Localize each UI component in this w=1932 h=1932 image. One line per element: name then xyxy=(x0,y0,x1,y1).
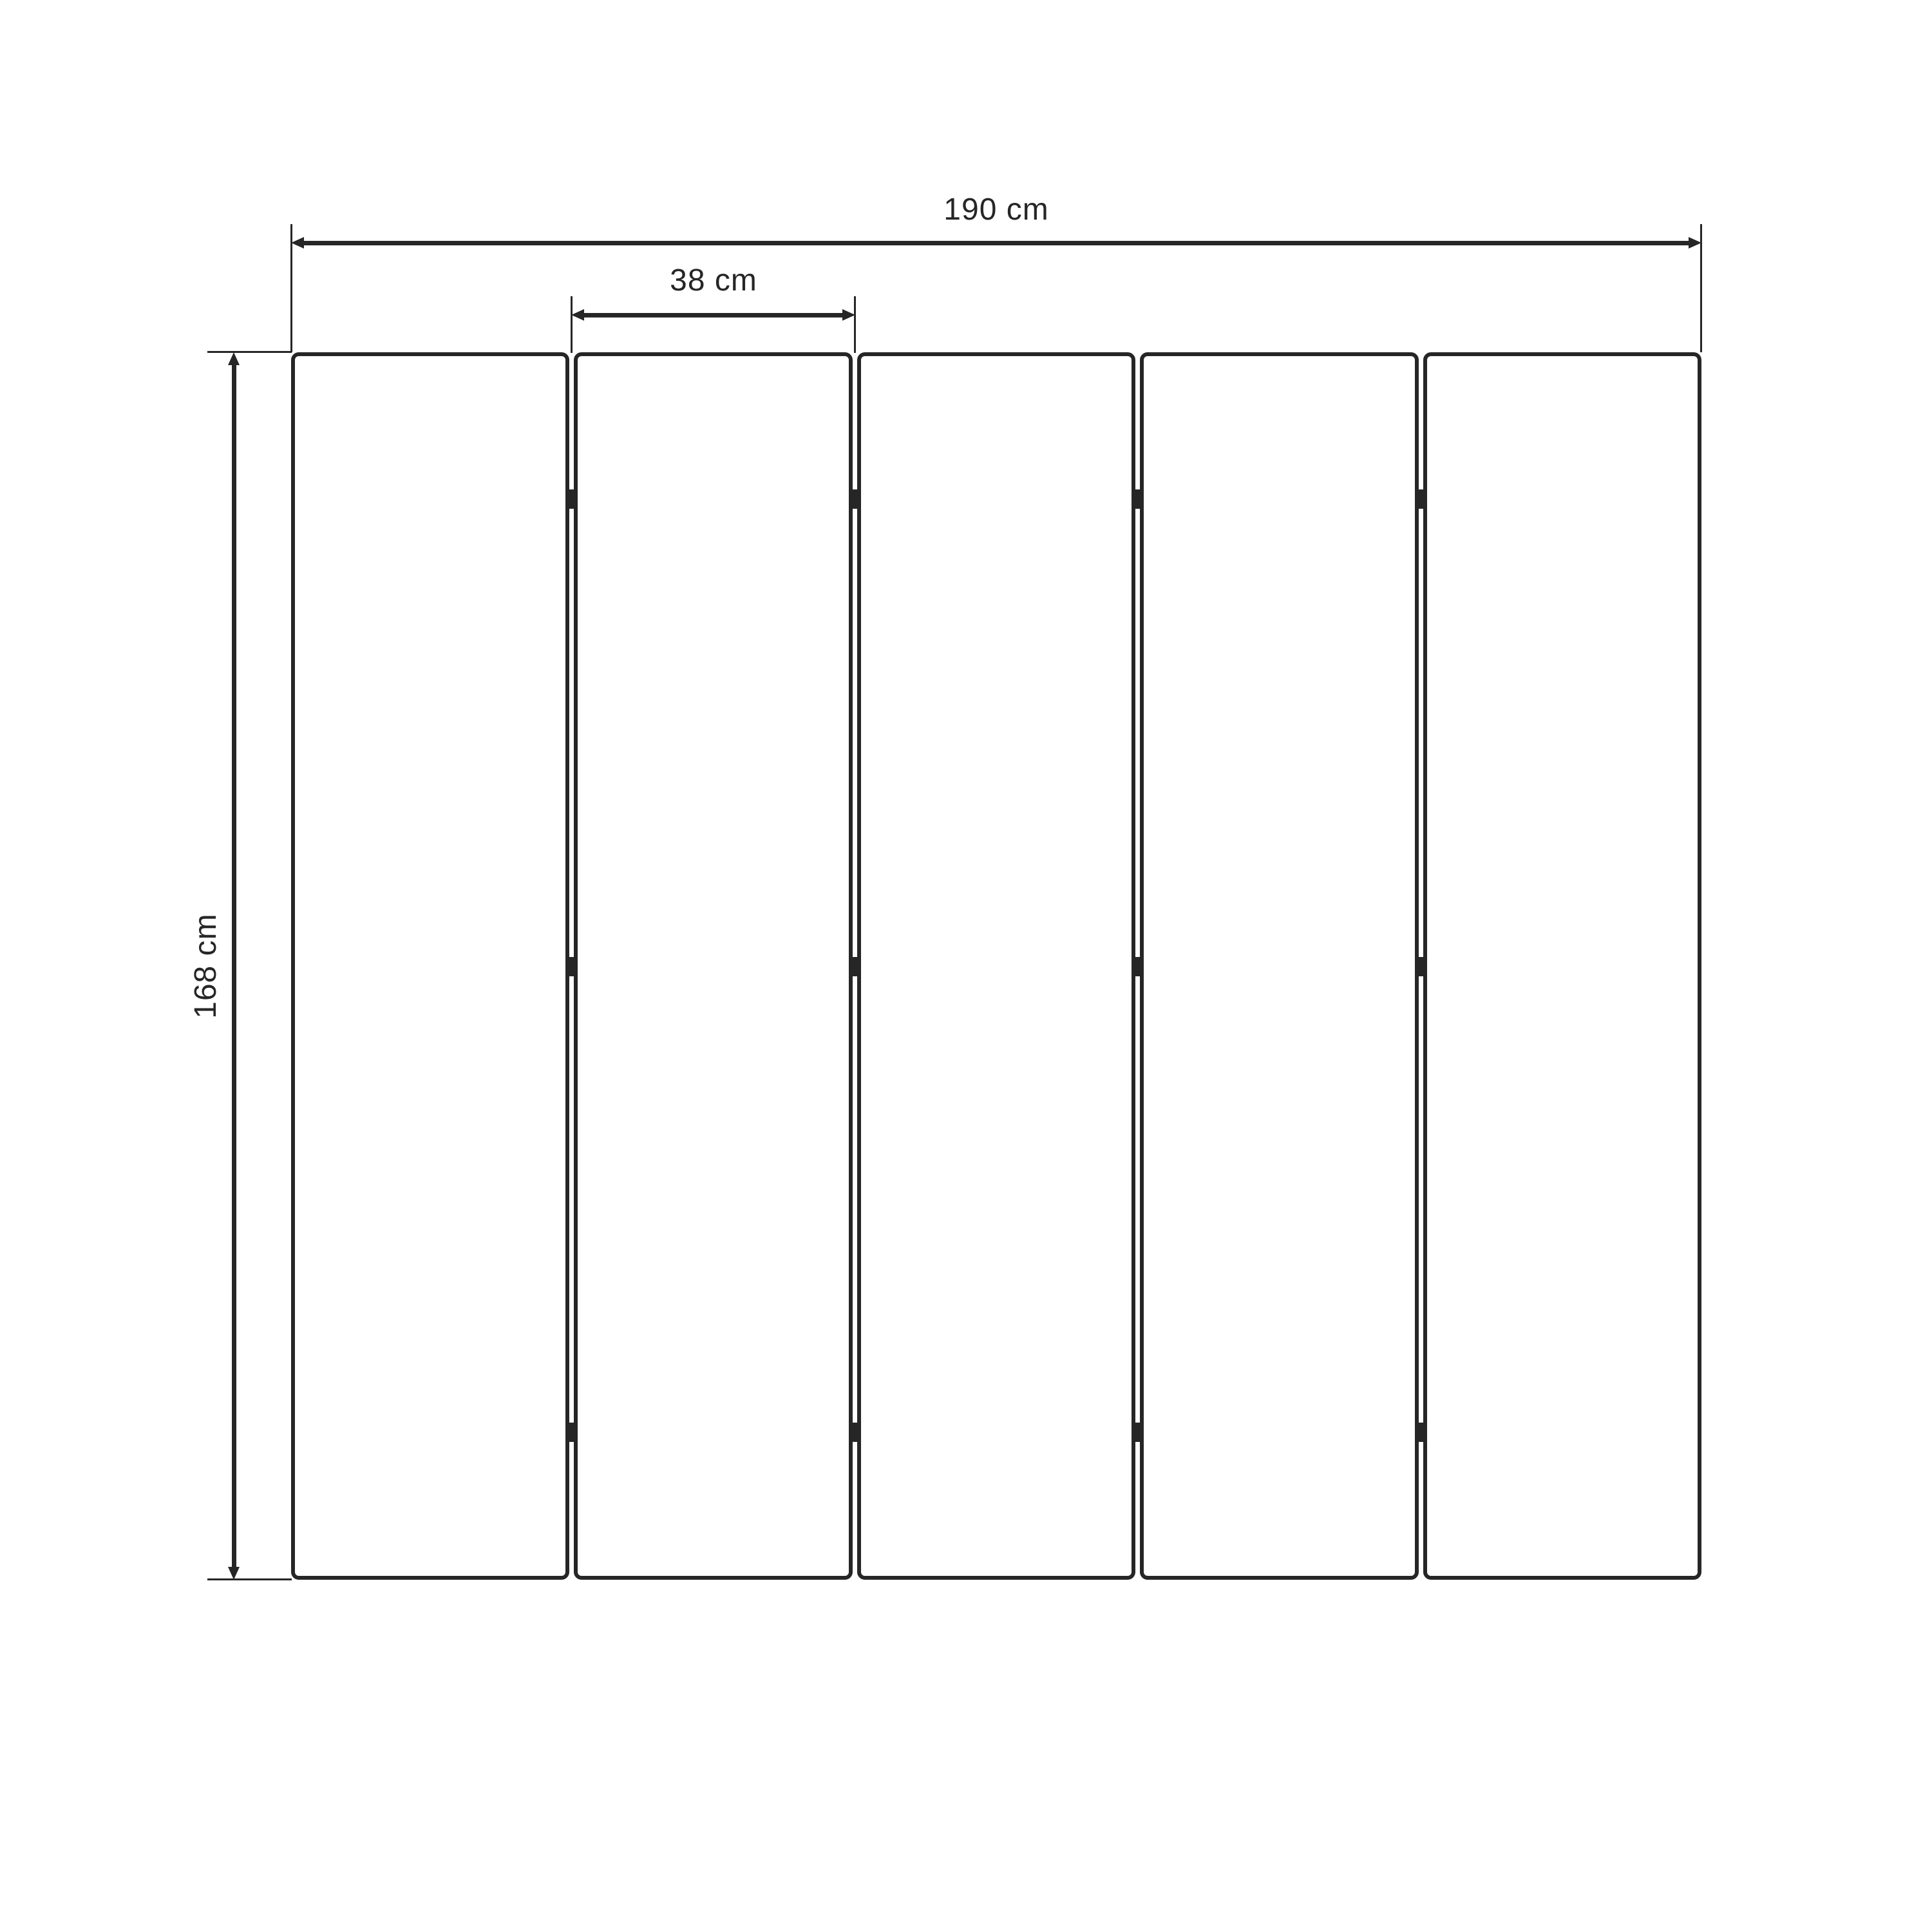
panel-5 xyxy=(1423,352,1701,1580)
hinge xyxy=(1132,957,1144,976)
arrow-down-icon xyxy=(228,1567,240,1580)
hinge xyxy=(1132,1423,1144,1442)
panel-width-dimension-label: 38 cm xyxy=(572,263,855,298)
hinge xyxy=(566,1423,578,1442)
panel-2 xyxy=(574,352,852,1580)
hinge xyxy=(566,957,578,976)
arrow-left-icon xyxy=(571,309,584,321)
hinge xyxy=(1415,1423,1426,1442)
hinge xyxy=(1415,957,1426,976)
hinge xyxy=(849,1423,860,1442)
dimension-drawing-canvas: 190 cm 38 cm 168 cm xyxy=(0,0,1932,1932)
panel-width-extension-line-left xyxy=(571,296,573,353)
panel-width-dimension-line xyxy=(583,313,844,317)
hinge xyxy=(566,489,578,509)
total-width-dimension-label: 190 cm xyxy=(291,192,1701,227)
arrow-right-icon xyxy=(842,309,855,321)
panel-width-extension-line-right xyxy=(854,296,856,353)
panel-1 xyxy=(291,352,569,1580)
panel-4 xyxy=(1140,352,1418,1580)
height-extension-line-top xyxy=(207,351,292,353)
panel-row xyxy=(291,352,1701,1580)
height-dimension-label: 168 cm xyxy=(187,869,225,1063)
panel-3 xyxy=(857,352,1135,1580)
hinge xyxy=(1415,489,1426,509)
hinge xyxy=(849,957,860,976)
arrow-right-icon xyxy=(1689,237,1701,249)
height-dimension-line xyxy=(232,365,236,1567)
arrow-left-icon xyxy=(291,237,304,249)
arrow-up-icon xyxy=(228,352,240,365)
hinge xyxy=(849,489,860,509)
height-extension-line-bottom xyxy=(207,1578,292,1580)
total-width-dimension-line xyxy=(303,241,1689,245)
hinge xyxy=(1132,489,1144,509)
